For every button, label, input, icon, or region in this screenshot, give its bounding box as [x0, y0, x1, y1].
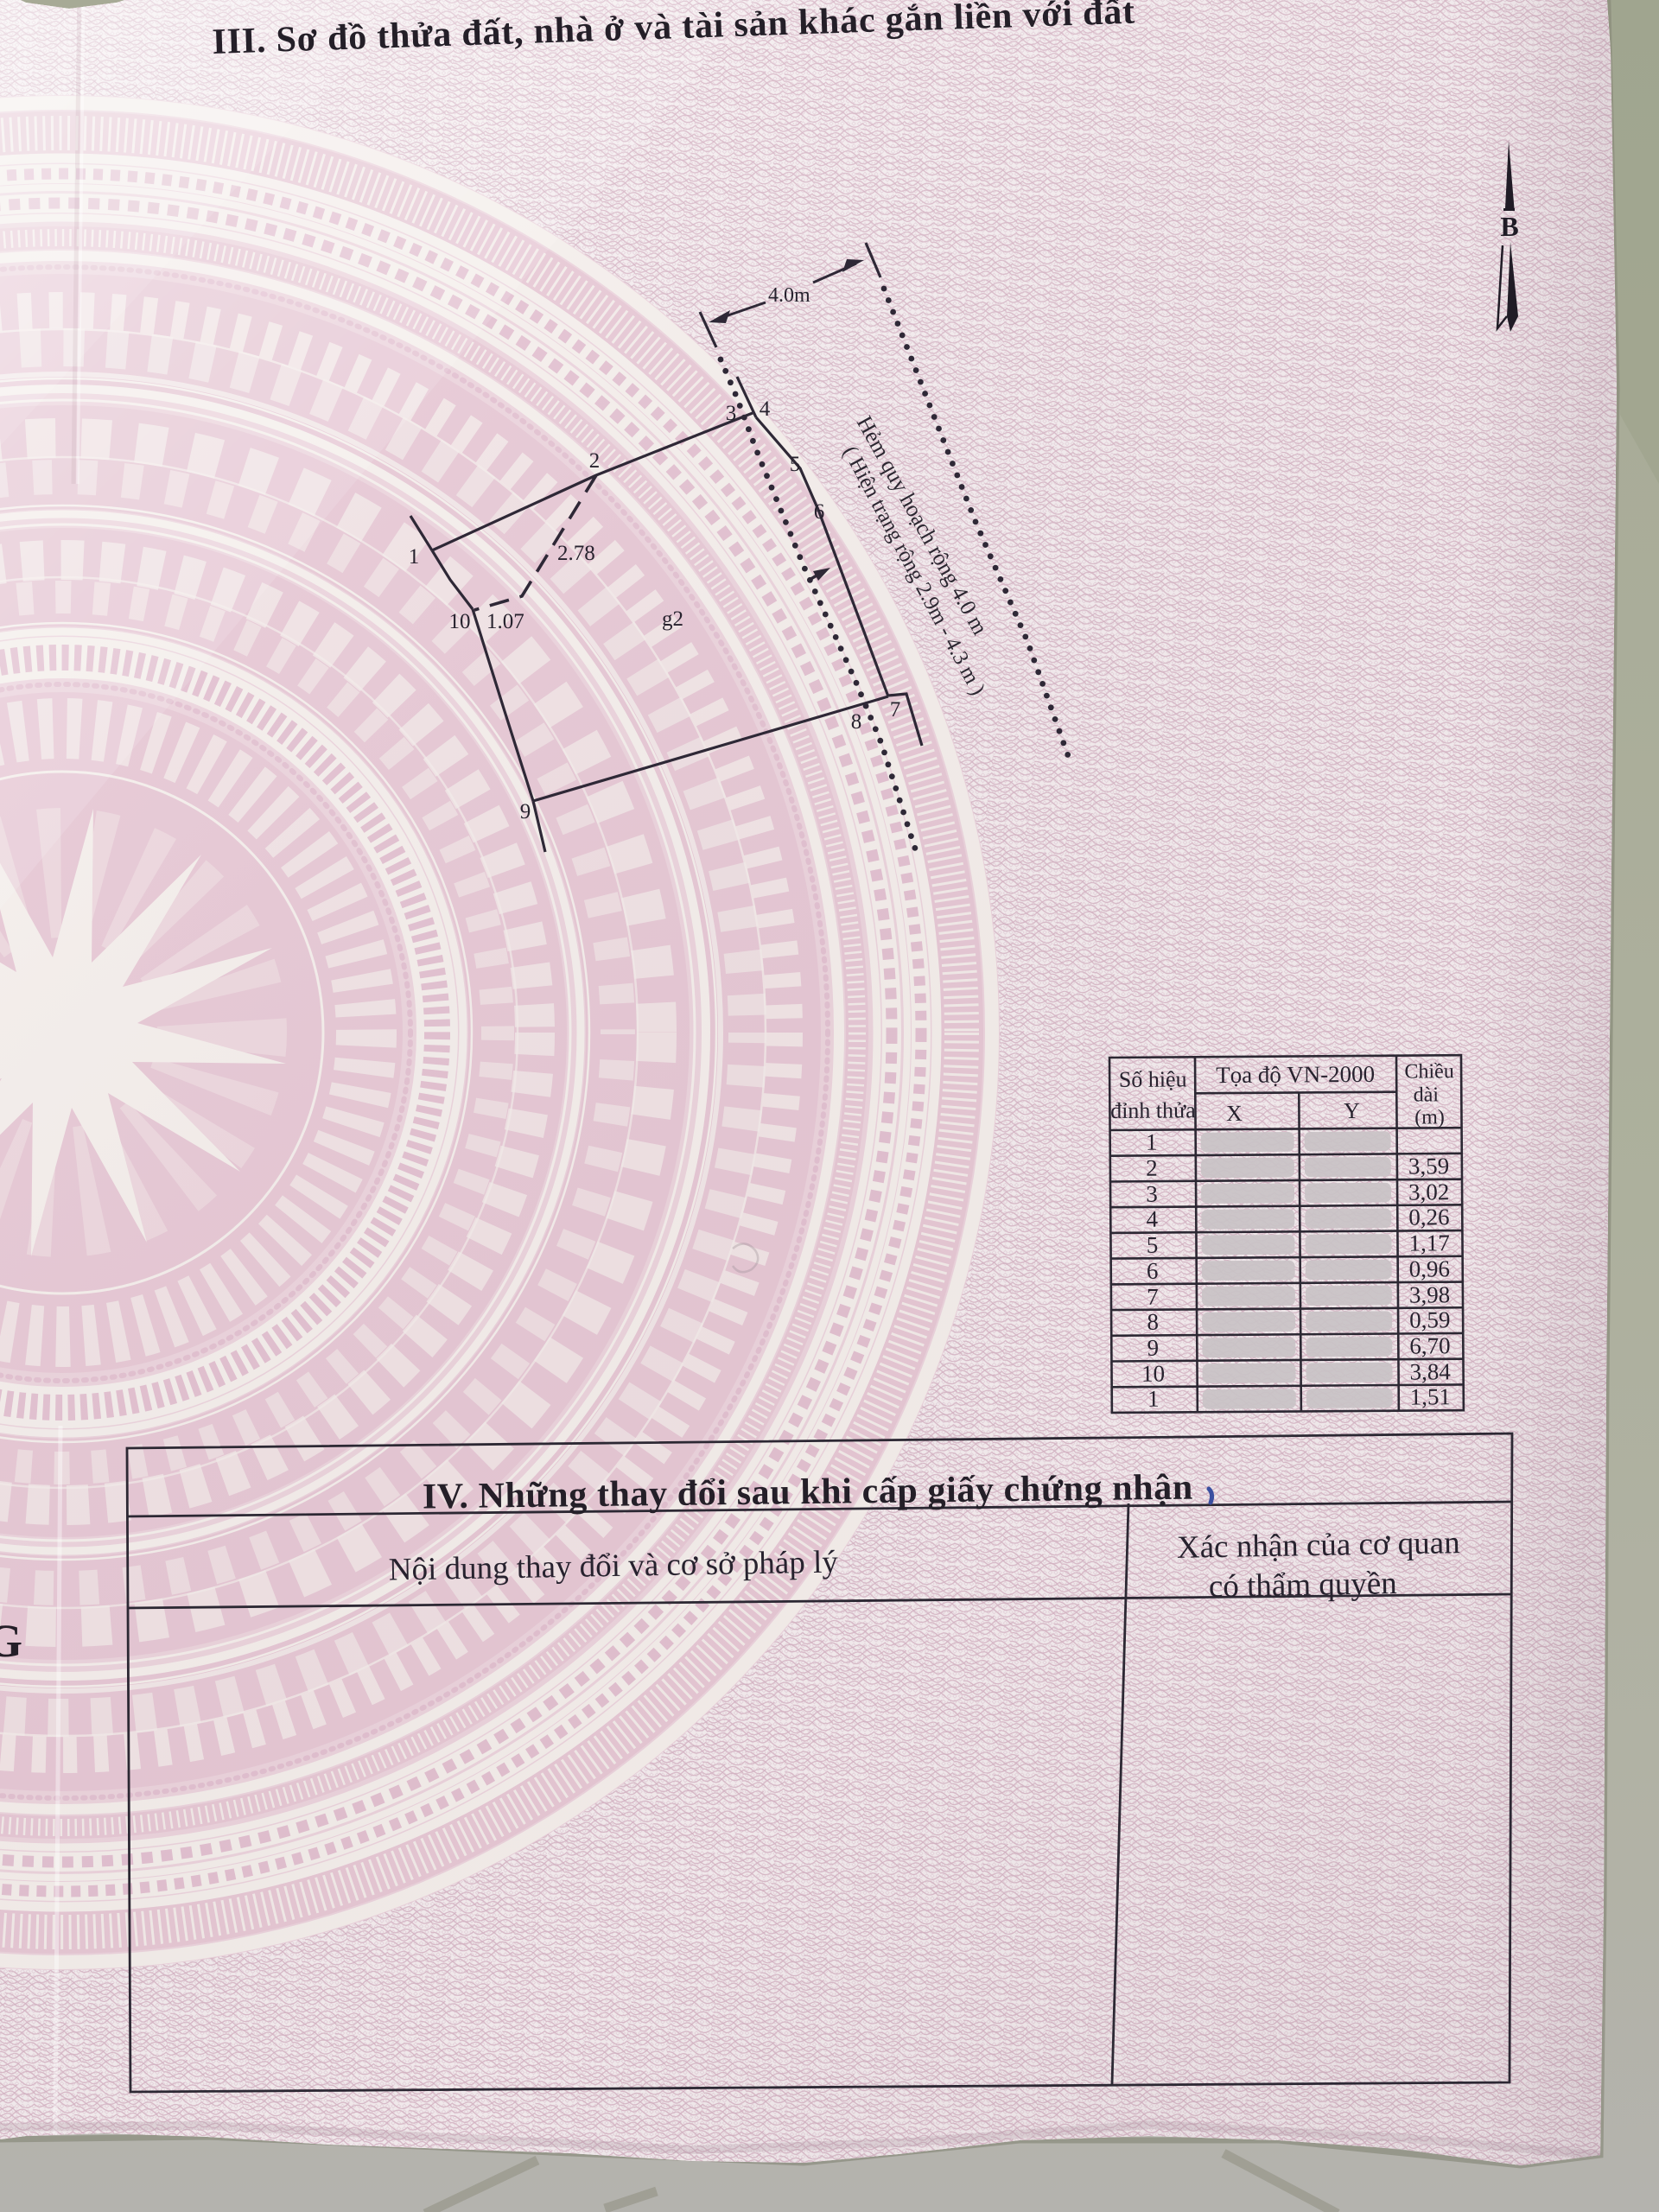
svg-text:3,98: 3,98: [1409, 1281, 1450, 1307]
svg-text:(m): (m): [1414, 1106, 1445, 1128]
svg-text:B: B: [1500, 211, 1518, 242]
svg-text:dài: dài: [1414, 1084, 1440, 1106]
svg-text:3,84: 3,84: [1409, 1358, 1451, 1384]
svg-text:đỉnh thửa: đỉnh thửa: [1110, 1097, 1196, 1123]
svg-text:5: 5: [1147, 1232, 1159, 1258]
svg-text:3: 3: [726, 402, 737, 425]
svg-text:9: 9: [1147, 1335, 1159, 1361]
svg-text:7: 7: [890, 698, 901, 721]
svg-text:X: X: [1226, 1101, 1243, 1126]
svg-text:4.0m: 4.0m: [768, 284, 810, 307]
svg-text:Số hiệu: Số hiệu: [1119, 1066, 1187, 1092]
svg-text:5: 5: [790, 453, 801, 476]
svg-text:0,26: 0,26: [1408, 1204, 1449, 1230]
svg-text:10: 10: [1141, 1361, 1165, 1387]
svg-text:Xác nhận của cơ quan: Xác nhận của cơ quan: [1177, 1525, 1460, 1566]
svg-text:2: 2: [1146, 1155, 1158, 1181]
svg-text:1,17: 1,17: [1408, 1230, 1449, 1255]
svg-text:Tọa độ VN-2000: Tọa độ VN-2000: [1216, 1061, 1375, 1088]
svg-text:6: 6: [1147, 1258, 1159, 1284]
svg-text:3,59: 3,59: [1408, 1153, 1449, 1179]
svg-text:0,96: 0,96: [1409, 1255, 1450, 1281]
svg-text:6: 6: [814, 500, 825, 524]
svg-text:3,02: 3,02: [1408, 1179, 1449, 1205]
svg-text:1: 1: [1146, 1129, 1158, 1155]
svg-text:6,70: 6,70: [1409, 1332, 1450, 1358]
svg-text:2: 2: [589, 449, 601, 473]
svg-text:4: 4: [760, 397, 771, 421]
svg-text:G: G: [0, 1615, 22, 1667]
svg-text:1: 1: [409, 545, 420, 569]
svg-text:1,51: 1,51: [1410, 1383, 1451, 1409]
svg-text:Chiều: Chiều: [1404, 1060, 1454, 1083]
svg-text:7: 7: [1147, 1284, 1159, 1310]
svg-text:8: 8: [851, 710, 862, 734]
svg-text:3: 3: [1146, 1181, 1158, 1207]
svg-text:4: 4: [1146, 1206, 1158, 1232]
svg-text:1: 1: [1147, 1386, 1160, 1412]
svg-text:10: 10: [449, 610, 471, 633]
svg-text:8: 8: [1147, 1309, 1159, 1335]
svg-text:2.78: 2.78: [557, 542, 595, 565]
svg-text:có thẩm quyền: có thẩm quyền: [1209, 1566, 1398, 1605]
svg-text:9: 9: [520, 800, 531, 823]
svg-text:g2: g2: [662, 607, 683, 631]
svg-text:Y: Y: [1344, 1098, 1360, 1123]
svg-text:1.07: 1.07: [486, 610, 524, 633]
svg-text:0,59: 0,59: [1409, 1306, 1450, 1332]
